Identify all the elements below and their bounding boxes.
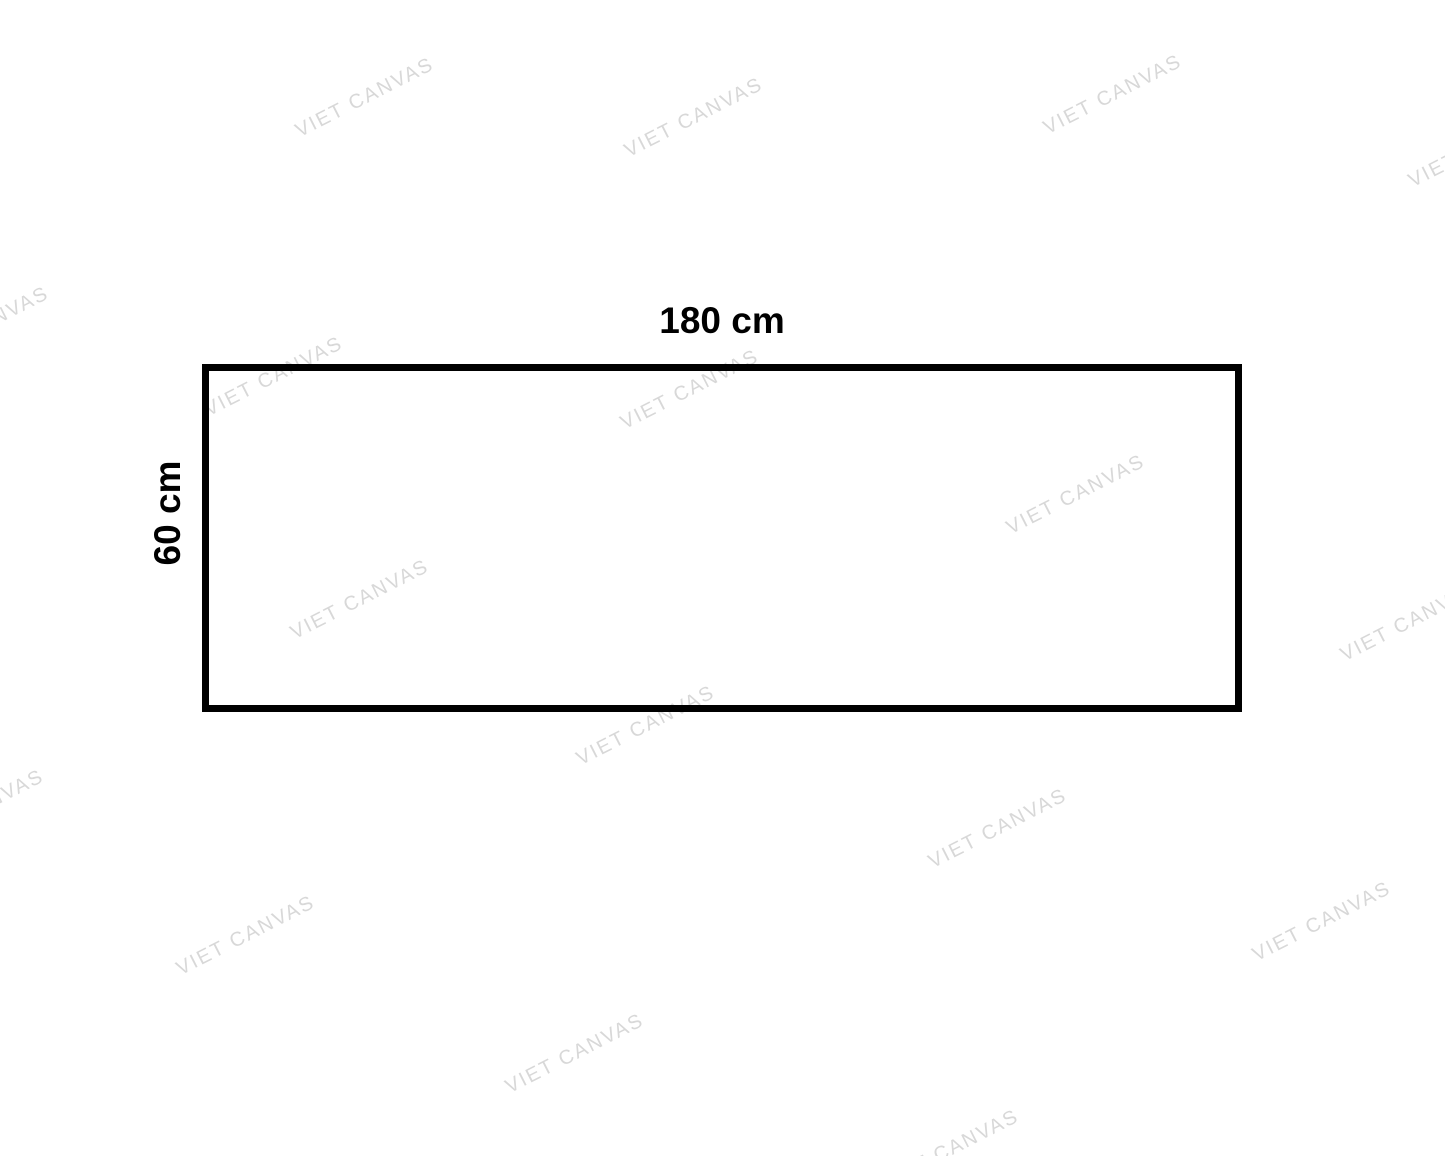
watermark-text: VIET CANVAS: [0, 282, 53, 372]
watermark-text: VIET CANVAS: [173, 891, 319, 981]
canvas-size-rectangle: [202, 364, 1242, 712]
height-dimension-label: 60 cm: [147, 461, 189, 566]
watermark-text: VIET CANVAS: [877, 1105, 1023, 1156]
watermark-text: VIET CANVAS: [502, 1009, 648, 1099]
watermark-text: VIET CANVAS: [1337, 577, 1445, 667]
watermark-text: VIET CANVAS: [0, 765, 48, 855]
width-dimension-label: 180 cm: [659, 300, 785, 342]
product-size-diagram: VIET CANVASVIET CANVASVIET CANVASVIET CA…: [0, 0, 1445, 1156]
watermark-text: VIET CANVAS: [1040, 50, 1186, 140]
watermark-text: VIET CANVAS: [1249, 877, 1395, 967]
watermark-text: VIET CANVAS: [621, 73, 767, 163]
watermark-text: VIET CANVAS: [1405, 103, 1445, 193]
watermark-text: VIET CANVAS: [292, 53, 438, 143]
watermark-text: VIET CANVAS: [925, 784, 1071, 874]
